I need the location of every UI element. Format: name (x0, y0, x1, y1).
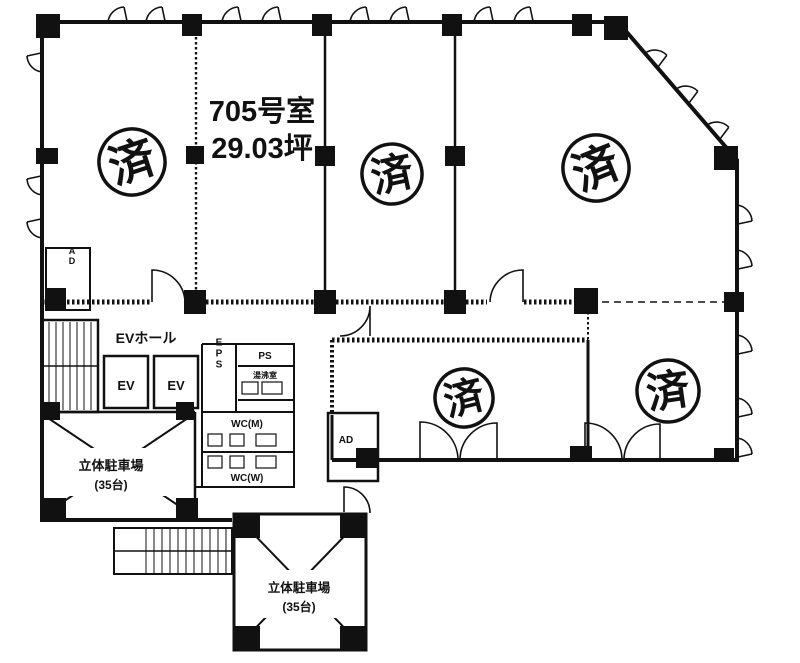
wc-men: WC(M) (208, 419, 276, 446)
double-door-2 (585, 423, 660, 460)
window-symbols (27, 7, 752, 457)
parking-left-line2: (35台) (94, 477, 127, 492)
kitchenette: 湯沸室 (242, 370, 282, 394)
wc-women: WC(W) (208, 456, 276, 484)
outer-wall-top-right (42, 22, 737, 460)
stair-external (114, 528, 232, 574)
stamp-4: 済 (429, 363, 499, 433)
floor-plan: EV EV EPS PS 湯沸室 WC(M) WC(W) AD AD (0, 0, 800, 663)
stamp-2: 済 (356, 138, 427, 209)
elevator-1-label: EV (117, 378, 135, 393)
elevator-1: EV (104, 356, 148, 408)
parking-tower-line2: (35台) (282, 599, 315, 614)
ps-shaft: PS (258, 351, 272, 362)
elevator-2: EV (154, 356, 198, 408)
eps-label: EPS (214, 338, 225, 371)
ev-hall-label: EVホール (116, 330, 177, 346)
stamp-5-char: 済 (644, 365, 694, 419)
wc-women-label: WC(W) (231, 473, 264, 484)
corridor-door-right (490, 270, 523, 302)
stamp-4-char: 済 (440, 373, 490, 426)
stamp-3: 済 (553, 125, 639, 211)
tower-door (344, 487, 370, 513)
room-area-label: 29.03坪 (211, 132, 313, 165)
ps-label: PS (258, 351, 272, 362)
unit-title: 705号室 29.03坪 (209, 94, 315, 165)
stamp-5: 済 (633, 356, 703, 426)
parking-left-line1: 立体駐車場 (78, 458, 143, 473)
elevator-2-label: EV (167, 378, 185, 393)
corridor-door-left (152, 270, 185, 302)
eps-shaft: EPS (214, 338, 225, 371)
parking-tower-line1: 立体駐車場 (268, 580, 331, 595)
stamp-1: 済 (90, 120, 173, 203)
wc-men-label: WC(M) (231, 419, 263, 430)
ad-mid-label: AD (339, 435, 353, 446)
ad-left-label: AD (67, 246, 77, 266)
stamp-2-char: 済 (367, 147, 419, 202)
stairwell (42, 320, 98, 412)
parking-left: 立体駐車場 (35台) (48, 418, 188, 512)
room-number-label: 705号室 (209, 94, 315, 128)
room-south-door (340, 306, 370, 336)
outer-wall-left-bottom (42, 22, 232, 520)
ad-shaft-mid: AD (328, 413, 378, 481)
kitchenette-label: 湯沸室 (253, 370, 277, 380)
